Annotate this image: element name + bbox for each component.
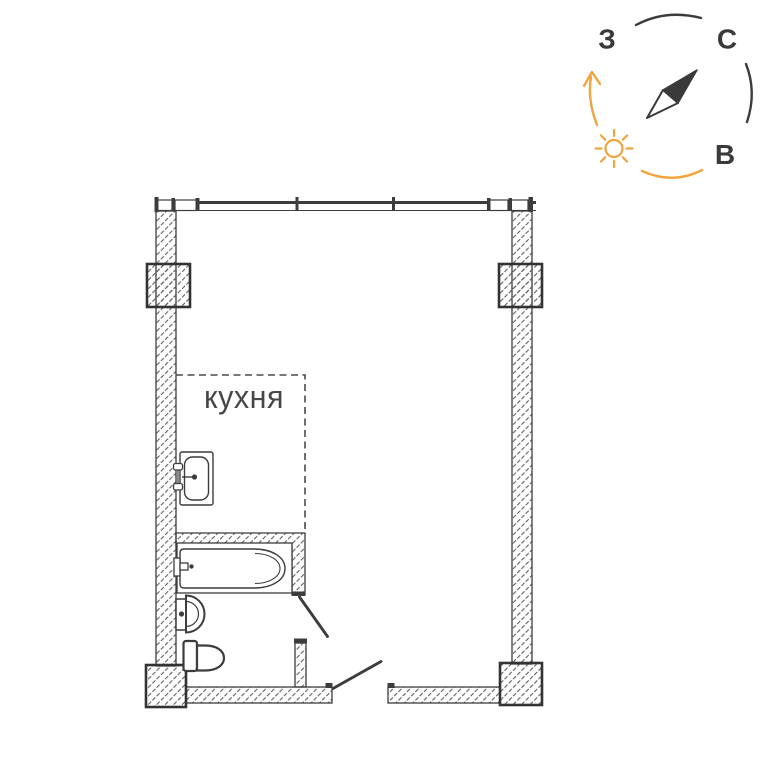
floor-plan-drawing: кухня xyxy=(0,0,768,768)
floor-plan-page: кухня xyxy=(0,0,768,768)
curved-arrow-icon xyxy=(584,72,600,125)
sun-icon xyxy=(596,130,633,167)
column-top-right xyxy=(499,264,542,307)
compass-arc-bottom xyxy=(642,170,702,178)
faucet-handle xyxy=(174,484,183,491)
window-mullion xyxy=(296,197,299,211)
door-jamb-tick xyxy=(388,683,395,688)
compass-arc-right xyxy=(746,64,752,122)
compass-rose: З С В xyxy=(584,15,752,178)
direction-label-west: З xyxy=(598,24,616,55)
window-frame-segment xyxy=(489,200,508,211)
window-frame-segment xyxy=(511,200,528,211)
window-frame-segment xyxy=(175,200,197,211)
bottom-wall-right xyxy=(388,687,500,703)
column-bottom-right xyxy=(500,663,542,705)
bathtub xyxy=(174,543,292,593)
faucet-spout xyxy=(192,474,197,479)
door-jamb-tick xyxy=(326,683,333,688)
kitchen-sink xyxy=(174,452,214,505)
window-post xyxy=(155,197,159,212)
window-post xyxy=(529,197,534,212)
window-post xyxy=(172,198,176,211)
window-frame-segment xyxy=(157,200,172,211)
window-post xyxy=(509,198,513,211)
column-bottom-left xyxy=(146,665,186,707)
basin-tap xyxy=(179,611,184,616)
washbasin xyxy=(176,596,205,633)
compass-needle-icon xyxy=(647,70,697,118)
kitchen-room-label: кухня xyxy=(204,379,284,415)
column-top-left xyxy=(147,264,190,307)
direction-label-east: В xyxy=(715,139,735,170)
bath-faucet-spout xyxy=(189,564,193,568)
faucet-handle xyxy=(174,464,183,471)
window-post xyxy=(487,198,491,211)
toilet xyxy=(184,641,225,671)
bathroom-wall-stub xyxy=(295,643,306,687)
bath-faucet xyxy=(174,558,180,576)
direction-label-north: С xyxy=(717,24,737,55)
wall-end-cap xyxy=(292,592,305,597)
bathroom-door-leaf xyxy=(300,597,328,637)
bath-faucet xyxy=(180,563,188,570)
window-post xyxy=(196,198,200,211)
compass-arc-top xyxy=(636,15,701,25)
wall-end-cap xyxy=(294,639,307,644)
apartment-plan: кухня xyxy=(146,197,542,707)
bottom-wall-left xyxy=(186,687,332,703)
window-mullion xyxy=(392,197,395,211)
entrance-door-leaf xyxy=(333,662,381,689)
window-band xyxy=(155,197,537,212)
